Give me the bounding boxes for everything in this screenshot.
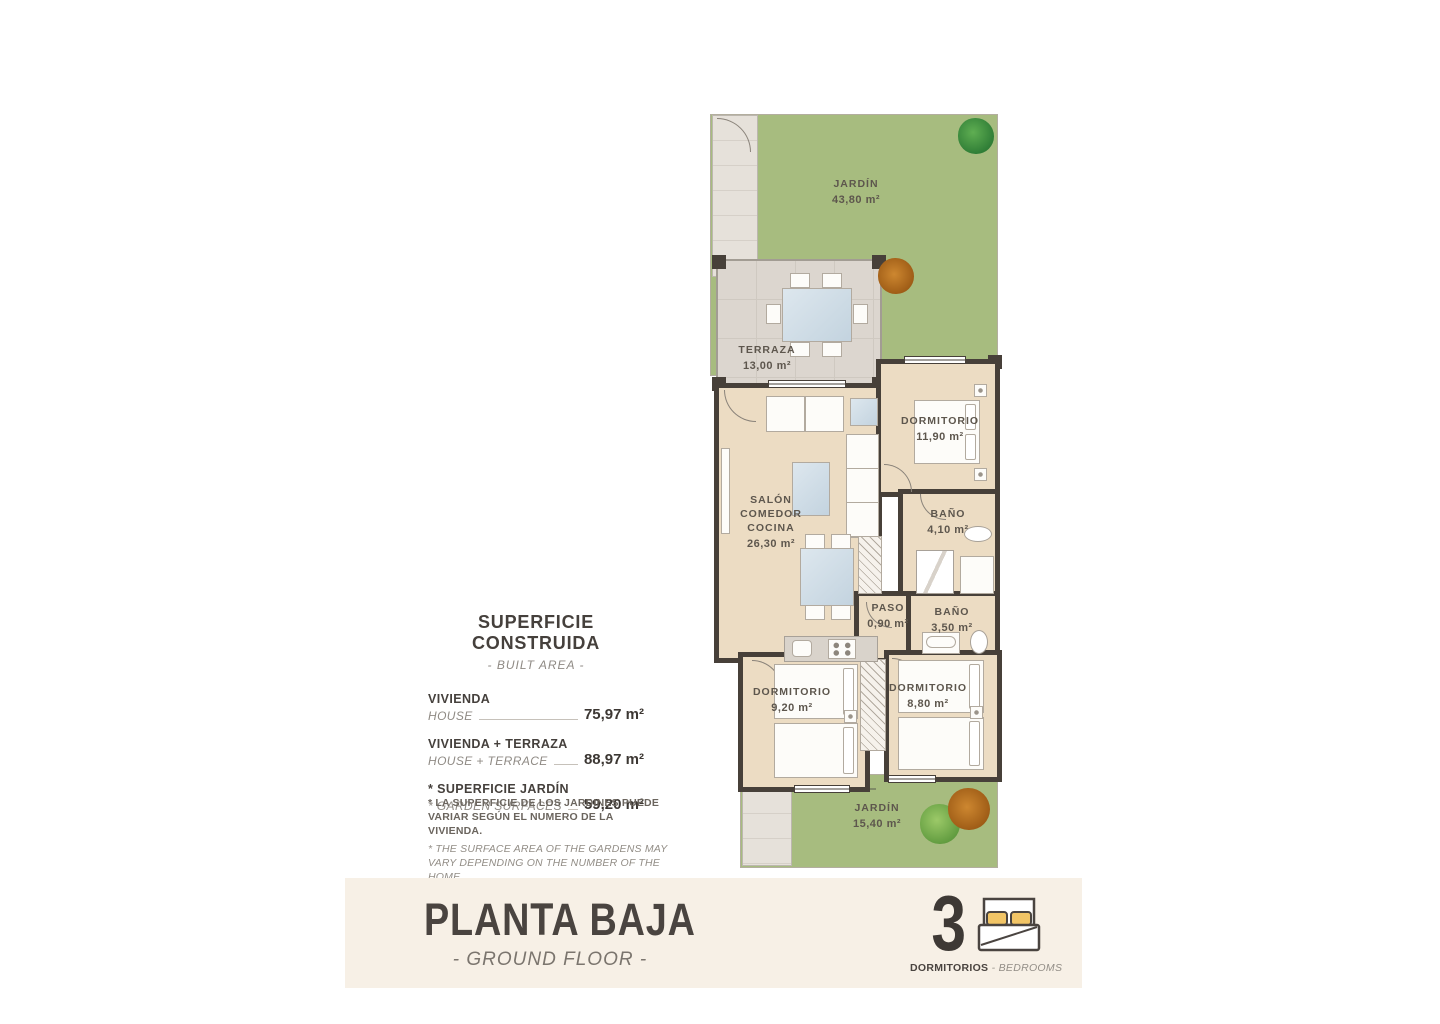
single-bed [898, 717, 984, 770]
label-dormitorio-1: DORMITORIO 11,90 m² [884, 415, 996, 443]
summary-row: VIVIENDA HOUSE 75,97 m² [428, 692, 644, 723]
summary-row-value: 88,97 m² [584, 751, 644, 768]
footnote-spanish: * LA SUPERFICIE DE LOS JARDINES PUEDE VA… [428, 796, 668, 839]
chaise-sofa [846, 434, 879, 538]
kitchen-sink [792, 640, 812, 657]
room-name: DORMITORIO [742, 686, 842, 700]
room-area: 8,80 m² [878, 698, 978, 710]
bathtub-basin [926, 636, 956, 648]
dining-table [782, 288, 852, 342]
summary-row-sublabel: HOUSE + TERRACE [428, 754, 548, 768]
sofa [766, 396, 844, 432]
shower [916, 550, 954, 594]
garden-footnote: * LA SUPERFICIE DE LOS JARDINES PUEDE VA… [428, 796, 668, 884]
chair [822, 273, 842, 288]
built-area-summary: SUPERFICIE CONSTRUIDA - BUILT AREA - VIV… [428, 612, 644, 813]
room-area: 9,20 m² [742, 702, 842, 714]
summary-row-label: VIVIENDA + TERRAZA [428, 737, 644, 751]
chair [853, 304, 868, 324]
label-bano-1: BAÑO 4,10 m² [902, 508, 994, 536]
cooktop [828, 639, 856, 659]
label-jardin-bottom: JARDÍN 15,40 m² [818, 802, 936, 830]
tree-icon [948, 788, 990, 830]
tree-icon [958, 118, 994, 154]
nightstand [974, 468, 987, 481]
room-area: 15,40 m² [818, 818, 936, 830]
label-jardin-top: JARDÍN 43,80 m² [796, 178, 916, 206]
room-name: DORMITORIO [878, 682, 978, 696]
single-bed [774, 723, 858, 778]
summary-title: SUPERFICIE CONSTRUIDA [428, 612, 644, 654]
summary-row-label: * SUPERFICIE JARDÍN [428, 782, 644, 796]
leader-line [479, 719, 578, 720]
chair [805, 605, 825, 620]
window [794, 785, 850, 793]
bathtub [922, 632, 960, 654]
floor-subtitle: - GROUND FLOOR - [400, 949, 700, 971]
room-area: 11,90 m² [884, 431, 996, 443]
summary-row-sublabel: HOUSE [428, 709, 473, 723]
leader-line [554, 764, 578, 765]
room-name: BAÑO [910, 606, 994, 620]
room-area: 4,10 m² [902, 524, 994, 536]
pillow [843, 727, 854, 774]
chair [822, 342, 842, 357]
label-salon: SALÓN COMEDOR COCINA 26,30 m² [724, 494, 818, 550]
bed-icon [975, 896, 1043, 954]
room-area: 3,50 m² [910, 622, 994, 634]
footer-bar: PLANTA BAJA - GROUND FLOOR - 3 DORMITORI… [345, 878, 1082, 988]
bedrooms-sublabel: - BEDROOMS [992, 962, 1063, 974]
bedrooms-count: 3 [932, 886, 967, 960]
nightstand [974, 384, 987, 397]
chair [831, 534, 851, 549]
wardrobe [858, 536, 882, 594]
window [888, 775, 936, 783]
label-dormitorio-2: DORMITORIO 9,20 m² [742, 686, 842, 714]
summary-row-label: VIVIENDA [428, 692, 644, 706]
label-bano-2: BAÑO 3,50 m² [910, 606, 994, 634]
window [768, 380, 846, 388]
room-name: JARDÍN [818, 802, 936, 816]
tree-icon [878, 258, 914, 294]
pillar [712, 255, 726, 269]
nightstand [844, 710, 857, 723]
summary-row-value: 75,97 m² [584, 706, 644, 723]
room-name: DORMITORIO [884, 415, 996, 429]
bedrooms-block: 3 DORMITORIOS - BEDROOMS [910, 886, 1060, 974]
side-table [850, 398, 878, 426]
washer-unit [960, 556, 994, 594]
chair [766, 304, 781, 324]
room-name: JARDÍN [796, 178, 916, 192]
floor-title-block: PLANTA BAJA - GROUND FLOOR - [400, 894, 700, 971]
pillow [969, 721, 980, 766]
chair [790, 273, 810, 288]
pillow [843, 668, 854, 715]
summary-row: VIVIENDA + TERRAZA HOUSE + TERRACE 88,97… [428, 737, 644, 768]
summary-subtitle: - BUILT AREA - [428, 658, 644, 672]
floor-plan: JARDÍN 43,80 m² TERRAZA 13,00 m² SALÓN C… [708, 112, 1004, 872]
label-terraza: TERRAZA 13,00 m² [722, 344, 812, 372]
room-name: BAÑO [902, 508, 994, 522]
room-area: 43,80 m² [796, 194, 916, 206]
floor-title: PLANTA BAJA [424, 894, 676, 946]
window [904, 356, 966, 364]
room-name: TERRAZA [722, 344, 812, 358]
room-name: SALÓN COMEDOR COCINA [724, 494, 818, 536]
kitchen-table [800, 548, 854, 606]
garden-path [742, 788, 792, 866]
label-dormitorio-3: DORMITORIO 8,80 m² [878, 682, 978, 710]
room-area: 26,30 m² [724, 538, 818, 550]
room-area: 13,00 m² [722, 360, 812, 372]
